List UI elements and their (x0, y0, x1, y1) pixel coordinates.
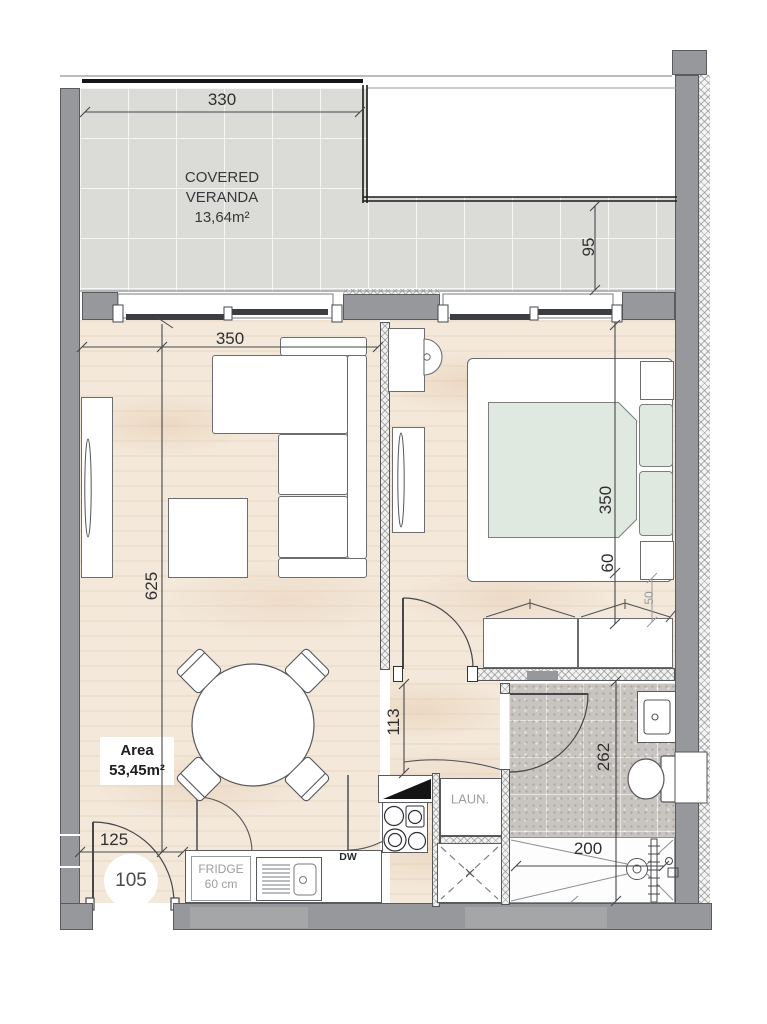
dim-shower-length: 200 (574, 839, 602, 859)
fridge-label-line2: 60 cm (198, 877, 243, 892)
area-value: 53,45m² (109, 761, 165, 781)
dim-living-width: 350 (216, 329, 244, 349)
dim-line-bedroom (610, 320, 620, 629)
dimension-lines (75, 107, 669, 906)
dim-entry-width: 125 (100, 830, 128, 850)
tv-bedroom-icon (398, 433, 404, 527)
roof-edge (82, 79, 363, 83)
dishwasher-label: DW (339, 851, 357, 863)
toilet (628, 756, 676, 802)
sink (262, 864, 316, 895)
tv-living-icon (85, 439, 91, 537)
dim-bedroom-length: 350 (596, 486, 616, 514)
bathroom-window-niche (675, 752, 707, 803)
shaft-cross (441, 847, 498, 899)
dim-bathroom-length: 262 (594, 743, 614, 771)
terrace-border (363, 85, 677, 203)
fridge-label: FRIDGE 60 cm (198, 862, 243, 892)
unit-number: 105 (115, 870, 147, 892)
dim-line-bathroom (611, 676, 621, 906)
living-room-window (113, 294, 342, 328)
desk-stool (424, 339, 442, 375)
washbasin (644, 700, 670, 734)
veranda-label-line2: VERANDA (185, 188, 259, 208)
dim-veranda-width: 330 (208, 90, 236, 110)
blanket-folds (618, 402, 637, 538)
dim-hallway-width: 113 (384, 708, 404, 735)
area-label: Area 53,45m² (109, 741, 165, 781)
dim-living-length: 625 (142, 572, 162, 600)
fridge-label-line1: FRIDGE (198, 862, 243, 877)
veranda-area: 13,64m² (185, 208, 259, 228)
bedroom-window (438, 294, 622, 322)
dim-veranda-depth: 95 (579, 238, 599, 257)
veranda-label: COVERED VERANDA 13,64m² (185, 168, 259, 228)
area-title: Area (109, 741, 165, 761)
veranda-label-line1: COVERED (185, 168, 259, 188)
dim-bed-clearance: 60 (598, 554, 618, 573)
dim-line-entry (75, 847, 188, 857)
corner-counter-wedge (383, 779, 431, 799)
floor-plan: 330 95 COVERED VERANDA 13,64m² 350 625 3… (0, 0, 767, 1024)
stove-burners (384, 806, 426, 851)
dim-wardrobe-clearance: 50 (642, 591, 656, 604)
laundry-label: LAUN. (451, 792, 489, 807)
